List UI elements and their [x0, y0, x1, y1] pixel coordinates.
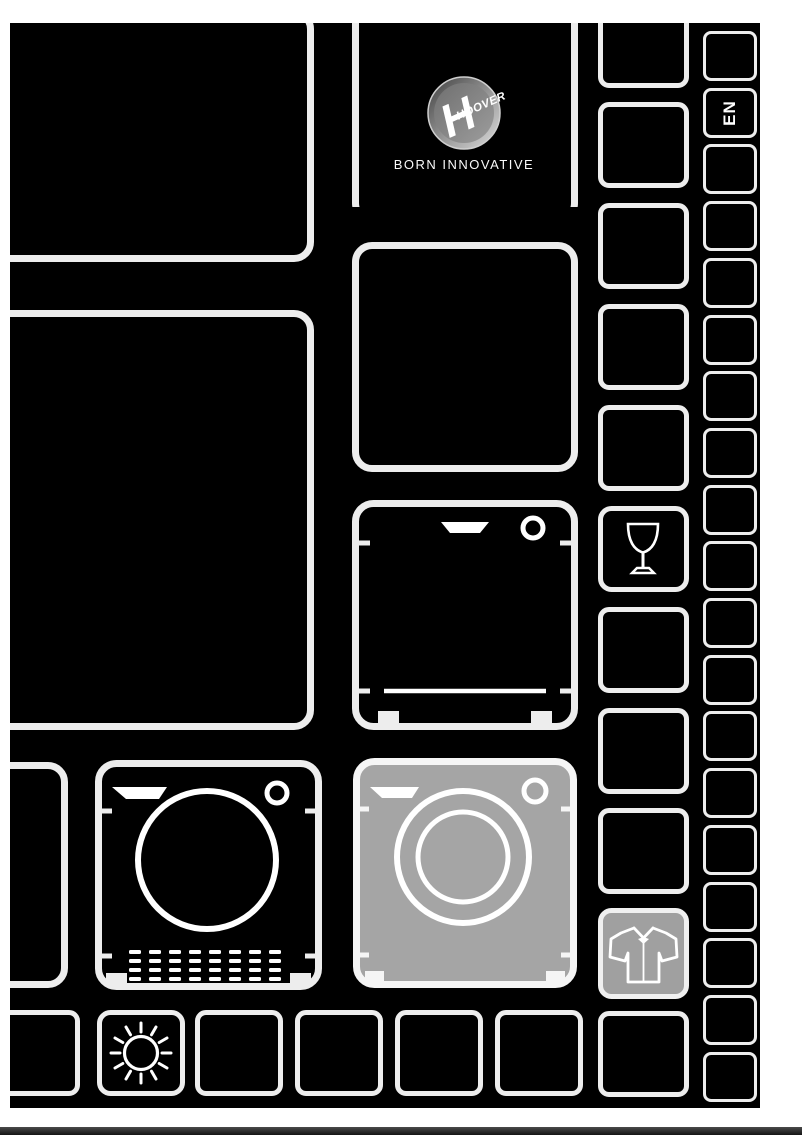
language-slot: [703, 485, 757, 535]
language-slot: [703, 144, 757, 194]
shirt-icon: [598, 908, 689, 999]
sun-tile: [97, 1010, 185, 1096]
language-slot: [703, 995, 757, 1045]
language-slot: [703, 882, 757, 932]
language-slot: [703, 598, 757, 648]
language-slot: [703, 201, 757, 251]
brand-tagline: BORN INNOVATIVE: [394, 157, 534, 172]
bottom-slot-cut: [10, 1010, 80, 1096]
language-slot: [703, 315, 757, 365]
sun-icon: [97, 1010, 185, 1096]
icon-slot: [598, 607, 689, 693]
blank-panel-cut-left: [10, 762, 68, 988]
icon-slot: [598, 102, 689, 188]
language-slot: [703, 768, 757, 818]
icon-slot: [598, 808, 689, 894]
icon-slot: [598, 405, 689, 491]
scan-edge-line: [0, 1127, 802, 1135]
language-slot: [703, 825, 757, 875]
language-slot: [703, 655, 757, 705]
laundry-shirt-tile-active: [598, 908, 689, 999]
blank-panel-top-left: [10, 23, 314, 262]
glassware-tile: [598, 506, 689, 592]
language-slot: [703, 428, 757, 478]
language-slot: [703, 541, 757, 591]
bottom-slot: [295, 1010, 383, 1096]
blank-panel-col2: [352, 242, 578, 472]
icon-slot: [598, 23, 689, 88]
language-slot: [703, 31, 757, 81]
icon-slot: [598, 304, 689, 390]
tumble-dryer-tile: [95, 760, 322, 990]
language-slot: [703, 371, 757, 421]
language-slot: [703, 938, 757, 988]
washing-machine-tile-active: [353, 758, 577, 988]
brand-logo-tile: H HOOVER BORN INNOVATIVE: [352, 23, 578, 207]
wine-glass-icon: [598, 506, 689, 592]
language-slot: [703, 711, 757, 761]
language-slot: [703, 1052, 757, 1102]
tumble-dryer-icon: [95, 760, 322, 990]
dishwasher-icon: [352, 500, 578, 730]
bottom-slot: [395, 1010, 483, 1096]
icon-slot: [598, 708, 689, 794]
blank-panel-mid-left: [10, 310, 314, 730]
washing-machine-icon: [353, 758, 577, 988]
bottom-slot: [495, 1010, 583, 1096]
language-tab-en: EN: [703, 88, 757, 138]
manual-cover: H HOOVER BORN INNOVATIVE: [0, 0, 802, 1136]
icon-slot: [598, 1011, 689, 1097]
bottom-slot: [195, 1010, 283, 1096]
language-tab-label: EN: [708, 89, 752, 137]
icon-slot: [598, 203, 689, 289]
cover-sheet: H HOOVER BORN INNOVATIVE: [10, 23, 760, 1108]
language-slot: [703, 258, 757, 308]
dishwasher-tile: [352, 500, 578, 730]
